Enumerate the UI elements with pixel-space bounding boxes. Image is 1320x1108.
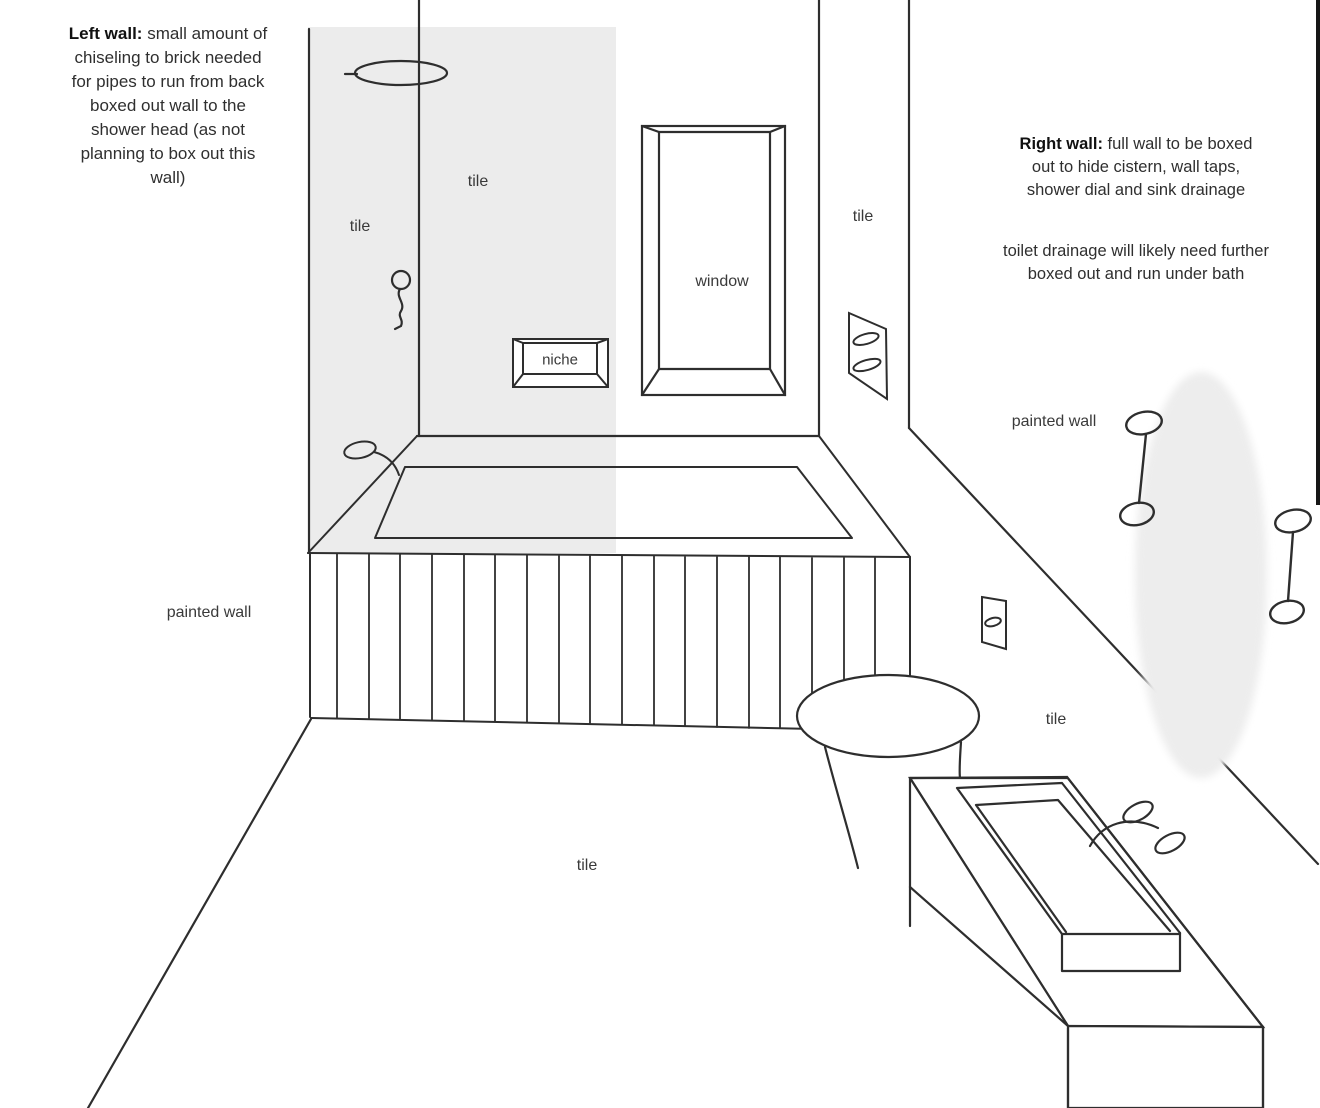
wall-tap-handle-icon bbox=[1268, 506, 1313, 626]
window-drawing bbox=[642, 126, 785, 395]
screen-edge-artifact bbox=[1316, 0, 1320, 505]
left-floor-junction bbox=[88, 719, 311, 1108]
label-tile-shower-wall: tile bbox=[468, 173, 488, 191]
toilet-pedestal-left bbox=[825, 747, 858, 868]
left-wall-note: Left wall: small amount of chiseling to … bbox=[30, 22, 306, 190]
right-wall-highlight-blob bbox=[1135, 372, 1267, 778]
label-painted-wall-right: painted wall bbox=[1012, 413, 1097, 431]
right-wall-note-lead: Right wall: bbox=[1020, 135, 1103, 153]
vanity-end-face bbox=[1068, 1026, 1263, 1108]
vanity-sink-drawing bbox=[910, 777, 1263, 1108]
right-wall-note-para1: Right wall: full wall to be boxed out to… bbox=[964, 133, 1308, 202]
label-tile-right-wall-lower: tile bbox=[1046, 711, 1066, 729]
toilet-pedestal-right bbox=[960, 742, 961, 778]
flush-plate-icon bbox=[982, 597, 1006, 649]
left-wall-note-body: small amount of chiseling to brick neede… bbox=[72, 24, 268, 187]
label-tile-right-wall-upper: tile bbox=[853, 208, 873, 226]
left-wall-note-lead: Left wall: bbox=[69, 24, 143, 43]
toilet-bowl bbox=[797, 675, 979, 757]
tiled-shower-area-shading bbox=[308, 27, 616, 553]
label-tile-left-wall: tile bbox=[350, 218, 370, 236]
right-wall-note: Right wall: full wall to be boxed out to… bbox=[964, 110, 1308, 309]
right-wall-note-para2: toilet drainage will likely need further… bbox=[964, 240, 1308, 286]
label-niche: niche bbox=[542, 352, 578, 369]
bathroom-sketch-canvas: Left wall: small amount of chiseling to … bbox=[0, 0, 1320, 1108]
label-window: window bbox=[695, 273, 748, 291]
label-painted-wall-left: painted wall bbox=[167, 604, 252, 622]
bath-deck-front-edge bbox=[308, 553, 910, 557]
label-tile-floor: tile bbox=[577, 857, 597, 875]
bath-panel-slats bbox=[337, 554, 875, 730]
shower-valve-plate-icon bbox=[849, 313, 887, 399]
